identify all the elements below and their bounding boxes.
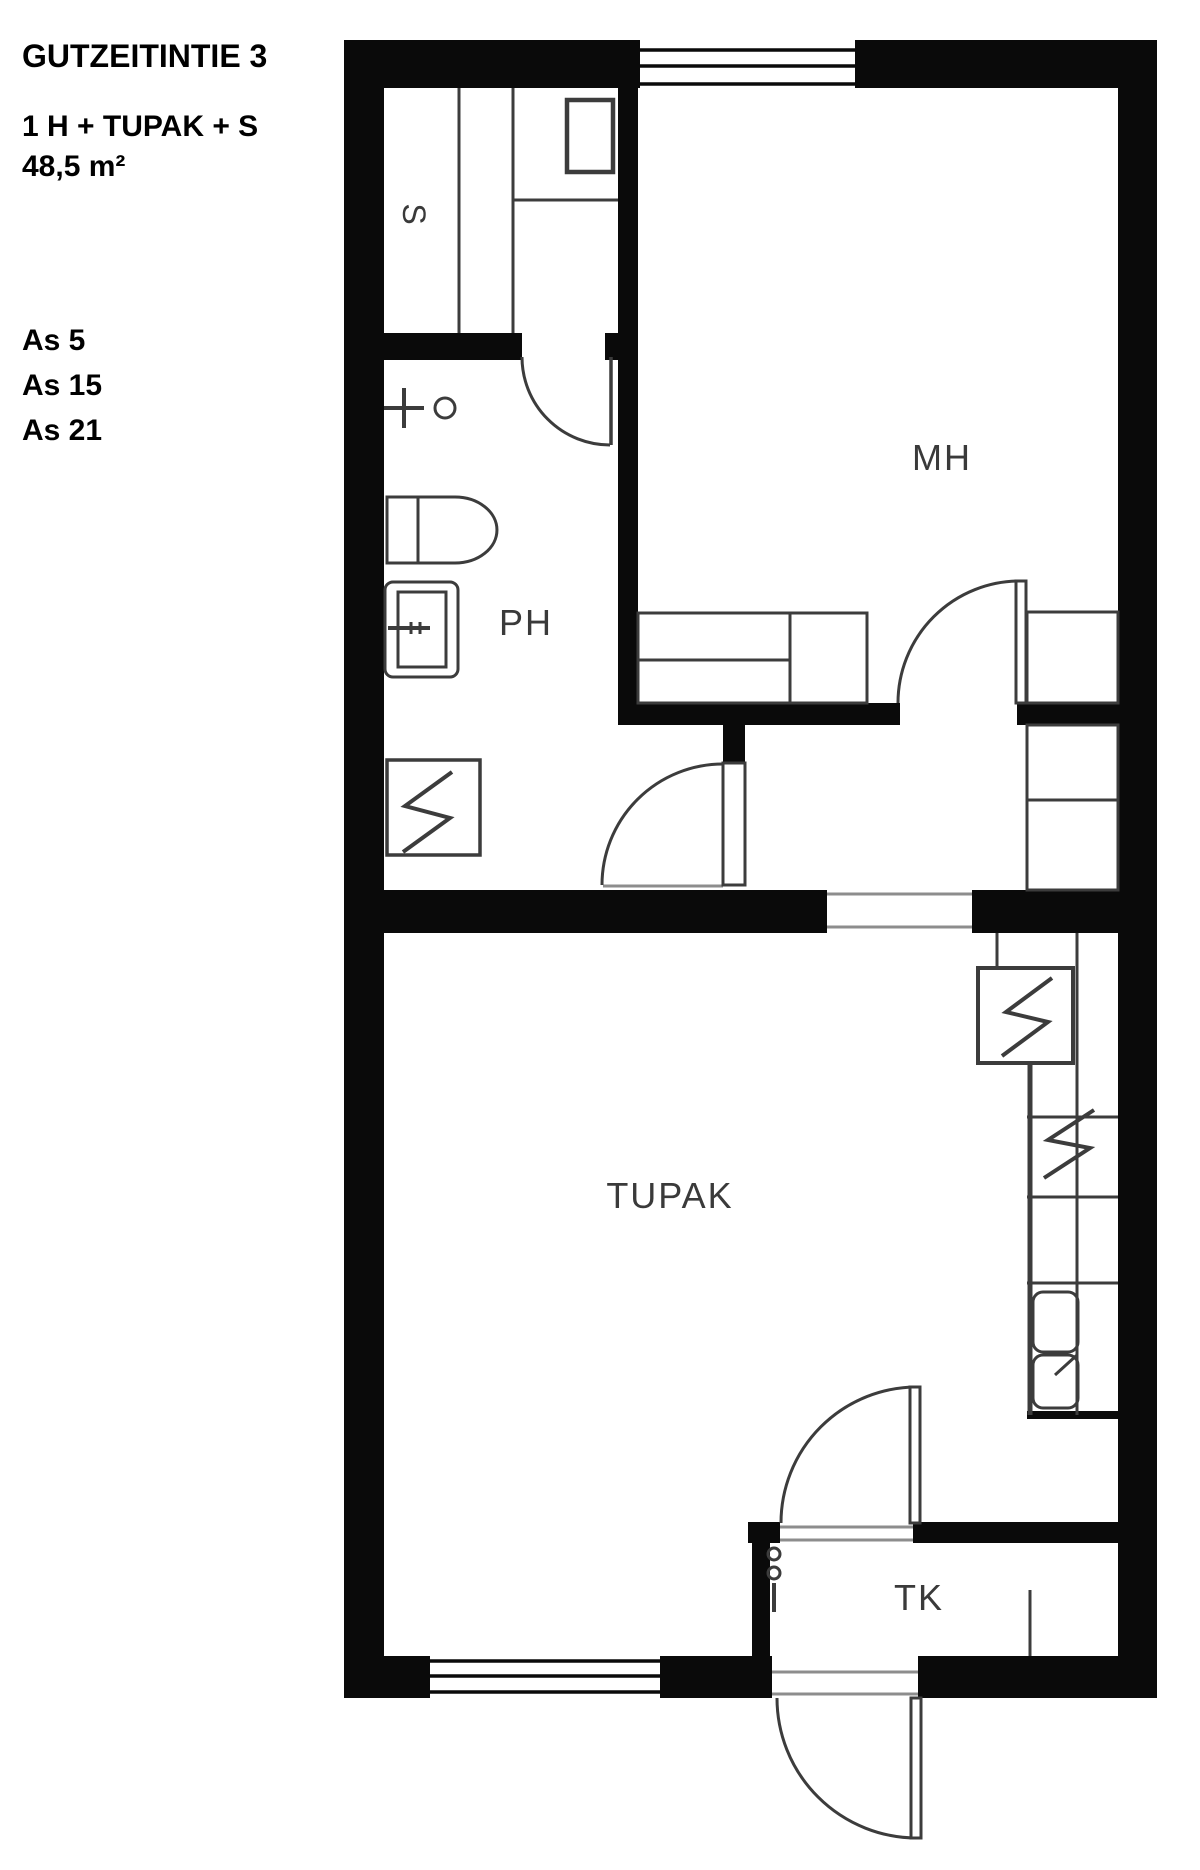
kitchen-sink-bowl xyxy=(1033,1292,1078,1352)
vestibule-door-leaf xyxy=(910,1387,920,1523)
doors xyxy=(522,357,1026,1838)
bedroom-door-arc xyxy=(898,581,1020,703)
vestibule-top-wall-jamb xyxy=(748,1522,780,1543)
interior-wall-sauna-bathroom xyxy=(384,333,522,360)
outer-wall-bottom-right xyxy=(918,1656,1157,1698)
bedroom-bottom-wall-right xyxy=(1017,703,1118,725)
washing-machine xyxy=(387,760,480,855)
kitchen-sink-drain-line xyxy=(1055,1355,1077,1375)
toilet-tank xyxy=(387,497,418,563)
room-label-bedroom: MH xyxy=(912,437,972,478)
entrance-door-arc xyxy=(777,1698,917,1838)
outer-wall-bottom-mid xyxy=(660,1656,772,1698)
entrance-door-leaf xyxy=(911,1698,921,1838)
outer-wall-left xyxy=(344,40,384,1698)
electric-appliance-bolt-icon xyxy=(1002,978,1052,1056)
walls xyxy=(344,40,1157,1698)
bedroom-bottom-wall-left xyxy=(638,703,900,725)
room-label-bathroom: PH xyxy=(499,602,553,643)
outer-wall-top-left xyxy=(344,40,640,88)
bedroom-closet xyxy=(790,613,867,703)
kitchen-sink-bowl xyxy=(1033,1355,1078,1408)
kitchen-counter-end xyxy=(1027,1411,1118,1419)
hall-closet xyxy=(1027,725,1118,800)
floor-drain-icon xyxy=(435,398,455,418)
living-room-top-wall-left xyxy=(384,890,827,933)
hall-door-stub xyxy=(723,725,745,763)
living-room-top-wall-right xyxy=(972,890,1118,933)
bedroom-corner-closet xyxy=(1027,612,1118,703)
outer-wall-top-right xyxy=(855,40,1157,88)
room-label-sauna: S xyxy=(396,203,432,226)
outer-wall-bottom-left xyxy=(344,1656,430,1698)
outer-wall-right xyxy=(1118,40,1157,1698)
floor-plan-drawing: S PH MH TUPAK TK xyxy=(0,0,1200,1870)
thresholds xyxy=(603,886,972,1694)
room-label-vestibule: TK xyxy=(894,1577,944,1618)
sauna-door-jamb xyxy=(605,333,618,360)
floor-plan-page: GUTZEITINTIE 3 1 H + TUPAK + S 48,5 m² A… xyxy=(0,0,1200,1870)
vestibule-top-wall xyxy=(913,1522,1118,1543)
bedroom-door-leaf xyxy=(1016,581,1026,703)
hall-closet xyxy=(1027,800,1118,890)
toilet-bowl xyxy=(418,497,497,563)
fixtures xyxy=(384,88,1118,1656)
sauna-heater xyxy=(567,100,613,172)
bedroom-closet xyxy=(638,613,790,703)
electric-appliance-bolt-icon xyxy=(1044,1110,1094,1178)
interior-wall-sauna-bedroom xyxy=(618,88,638,725)
windows xyxy=(430,50,855,1692)
hall-door-leaf xyxy=(723,763,745,885)
vestibule-door-arc xyxy=(781,1387,917,1523)
electric-appliance-bolt-icon xyxy=(403,772,452,852)
room-label-living-kitchen: TUPAK xyxy=(606,1175,733,1216)
hall-door-arc xyxy=(602,764,723,885)
sauna-door-arc xyxy=(522,357,610,445)
